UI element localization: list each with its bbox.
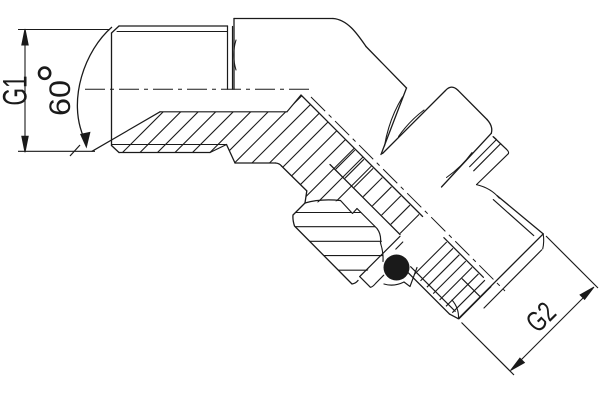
svg-text:G1: G1 bbox=[0, 76, 35, 106]
svg-text:60: 60 bbox=[44, 80, 77, 116]
